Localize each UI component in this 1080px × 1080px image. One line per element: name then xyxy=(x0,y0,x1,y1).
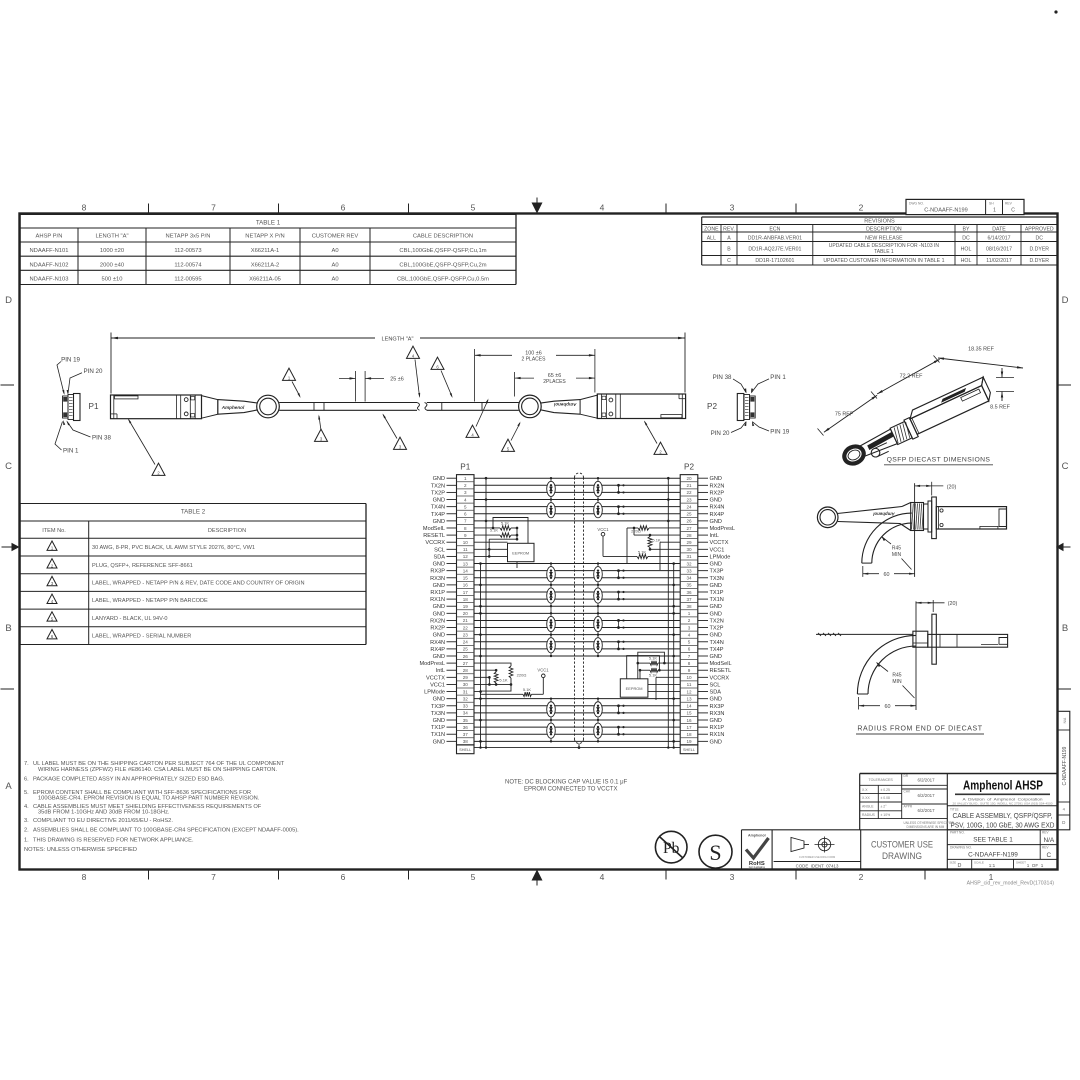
svg-text:33: 33 xyxy=(463,704,469,709)
svg-text:REVISIONS: REVISIONS xyxy=(864,219,895,225)
svg-text:RX4P: RX4P xyxy=(710,512,725,518)
svg-text:112-00595: 112-00595 xyxy=(174,276,201,282)
svg-text:TX3P: TX3P xyxy=(431,704,445,710)
svg-text:28: 28 xyxy=(463,668,469,673)
svg-text:5: 5 xyxy=(464,504,467,509)
svg-text:RX1N: RX1N xyxy=(710,732,725,738)
svg-text:PLUG, QSFP+, REFERENCE SFF-866: PLUG, QSFP+, REFERENCE SFF-8661 xyxy=(92,563,193,569)
svg-text:33: 33 xyxy=(686,568,692,573)
svg-text:27: 27 xyxy=(686,526,692,531)
svg-text:1: 1 xyxy=(993,207,996,213)
svg-text:VCC1: VCC1 xyxy=(430,682,445,688)
svg-text:1:1: 1:1 xyxy=(989,863,996,868)
svg-text:14: 14 xyxy=(463,568,469,573)
svg-text:27: 27 xyxy=(463,661,469,666)
svg-text:5.: 5. xyxy=(24,790,29,796)
svg-text:CABLE ASSEMBLY, QSFP/QSFP,: CABLE ASSEMBLY, QSFP/QSFP, xyxy=(953,811,1053,820)
svg-text:1.: 1. xyxy=(24,837,29,843)
svg-text:2PLACES: 2PLACES xyxy=(543,379,566,385)
svg-text:MIN: MIN xyxy=(892,679,902,685)
svg-text:5.1K: 5.1K xyxy=(523,687,532,692)
svg-text:RX2P: RX2P xyxy=(430,626,445,632)
svg-text:DRAWING NO.: DRAWING NO. xyxy=(950,845,972,849)
svg-text:GND: GND xyxy=(710,611,722,617)
svg-text:6/2/2017: 6/2/2017 xyxy=(917,793,935,798)
svg-text:RX3N: RX3N xyxy=(430,576,445,582)
svg-text:11/02/2017: 11/02/2017 xyxy=(986,258,1012,264)
svg-text:30: 30 xyxy=(463,682,469,687)
svg-text:COMPLIANT TO EU DIRECTIVE 2011: COMPLIANT TO EU DIRECTIVE 2011/65/EU - R… xyxy=(33,818,173,824)
svg-text:19: 19 xyxy=(686,739,692,744)
svg-text:VCC1: VCC1 xyxy=(537,668,549,673)
svg-text:12: 12 xyxy=(686,689,692,694)
svg-text:3: 3 xyxy=(730,203,735,213)
svg-text:VCC1: VCC1 xyxy=(710,547,725,553)
svg-text:18: 18 xyxy=(463,597,469,602)
svg-text:CBL,100GbE,QSFP-QSFP,Cu,0.5m: CBL,100GbE,QSFP-QSFP,Cu,0.5m xyxy=(397,276,489,282)
svg-text:GND: GND xyxy=(710,718,722,724)
svg-text:EEPROM: EEPROM xyxy=(512,551,529,556)
svg-text:13: 13 xyxy=(463,561,469,566)
svg-text:(20): (20) xyxy=(947,484,957,490)
svg-text:7: 7 xyxy=(464,519,467,524)
svg-text:VCCTX: VCCTX xyxy=(710,540,729,546)
svg-text:SHELL: SHELL xyxy=(459,748,471,752)
svg-text:CODE IDENT 07413: CODE IDENT 07413 xyxy=(796,863,839,868)
svg-text:Amphenol AHSP: Amphenol AHSP xyxy=(963,778,1043,793)
svg-text:APPR: APPR xyxy=(904,805,913,809)
svg-text:X.X: X.X xyxy=(862,788,868,792)
svg-text:Amphenol: Amphenol xyxy=(553,402,577,407)
svg-text:25 ±6: 25 ±6 xyxy=(390,377,403,383)
svg-text:ZONE: ZONE xyxy=(704,226,719,232)
svg-text:A: A xyxy=(5,781,12,792)
svg-text:7.: 7. xyxy=(24,761,29,767)
svg-text:HOL: HOL xyxy=(961,247,972,253)
svg-text:6/2/2017: 6/2/2017 xyxy=(917,778,935,783)
svg-text:20: 20 xyxy=(463,611,469,616)
svg-text:IntL: IntL xyxy=(710,533,719,539)
svg-text:12: 12 xyxy=(463,554,469,559)
svg-text:D.DYER: D.DYER xyxy=(1029,247,1049,253)
svg-text:R45: R45 xyxy=(892,673,901,679)
svg-text:X.XX: X.XX xyxy=(862,796,870,800)
svg-text:GND: GND xyxy=(433,583,445,589)
svg-text:NETAPP 3x5 P/N: NETAPP 3x5 P/N xyxy=(166,234,211,240)
svg-text:ITEM No.: ITEM No. xyxy=(42,528,66,534)
svg-text:11: 11 xyxy=(687,682,692,687)
svg-text:IntL: IntL xyxy=(436,668,445,674)
svg-text:HOL: HOL xyxy=(961,258,972,264)
svg-text:37: 37 xyxy=(463,732,469,737)
svg-text:18: 18 xyxy=(686,732,692,737)
svg-text:1000 ±20: 1000 ±20 xyxy=(100,248,124,254)
svg-text:B: B xyxy=(5,623,11,634)
svg-text:LPMode: LPMode xyxy=(424,690,445,696)
svg-text:D.DYER: D.DYER xyxy=(1029,258,1049,264)
svg-text:CHK: CHK xyxy=(904,790,912,794)
svg-text:31: 31 xyxy=(686,554,692,559)
svg-text:2011/65/EU: 2011/65/EU xyxy=(748,866,765,870)
svg-text:SH: SH xyxy=(989,201,994,205)
svg-text:LABEL, WRAPPED - SERIAL NUMBER: LABEL, WRAPPED - SERIAL NUMBER xyxy=(92,634,191,640)
svg-text:34: 34 xyxy=(463,711,469,716)
svg-text:10: 10 xyxy=(686,675,692,680)
svg-text:DESCRIPTION: DESCRIPTION xyxy=(866,226,902,232)
svg-text:DD1R-ANBFAB.VER01: DD1R-ANBFAB.VER01 xyxy=(748,235,802,241)
svg-text:3: 3 xyxy=(688,625,691,630)
svg-text:22: 22 xyxy=(686,490,692,495)
svg-text:P2: P2 xyxy=(684,463,694,472)
svg-text:A: A xyxy=(727,235,731,241)
svg-text:DR: DR xyxy=(904,774,909,778)
svg-text:AHSP_cid_rev_model_RevD(170314: AHSP_cid_rev_model_RevD(170314) xyxy=(967,881,1055,887)
svg-text:24: 24 xyxy=(686,504,692,509)
svg-text:24: 24 xyxy=(463,640,469,645)
svg-text:ALL: ALL xyxy=(707,235,716,241)
svg-text:X66211A-05: X66211A-05 xyxy=(249,276,281,282)
svg-text:B: B xyxy=(1062,623,1068,634)
svg-text:4: 4 xyxy=(600,872,605,882)
svg-text:20: 20 xyxy=(686,476,692,481)
svg-text:1: 1 xyxy=(688,611,691,616)
svg-text:16: 16 xyxy=(463,583,469,588)
svg-text:4: 4 xyxy=(600,203,605,213)
svg-text:ModPresL: ModPresL xyxy=(420,661,446,667)
svg-text:13: 13 xyxy=(686,696,692,701)
svg-text:SCL: SCL xyxy=(710,682,721,688)
svg-text:DRAWING: DRAWING xyxy=(882,851,922,862)
svg-text:30: 30 xyxy=(686,547,692,552)
svg-text:RX2P: RX2P xyxy=(710,490,725,496)
svg-text:7: 7 xyxy=(688,654,691,659)
svg-text:28: 28 xyxy=(686,533,692,538)
svg-text:DESCRIPTION: DESCRIPTION xyxy=(208,528,246,534)
svg-text:TX3N: TX3N xyxy=(710,576,724,582)
svg-text:29: 29 xyxy=(686,540,692,545)
svg-text:QSFP DIECAST DIMENSIONS: QSFP DIECAST DIMENSIONS xyxy=(887,457,991,464)
svg-text:LPMode: LPMode xyxy=(710,554,731,560)
svg-text:GND: GND xyxy=(710,562,722,568)
svg-text:4: 4 xyxy=(688,632,691,637)
svg-text:GND: GND xyxy=(433,739,445,745)
svg-text:LANYARD - BLACK, UL 94V-0: LANYARD - BLACK, UL 94V-0 xyxy=(92,616,168,622)
svg-text:SCL: SCL xyxy=(434,547,445,553)
svg-text:CUSTOMER USE DWG FORM: CUSTOMER USE DWG FORM xyxy=(799,855,835,859)
svg-text:A Division of Amphenol Cor: A Division of Amphenol Corporation xyxy=(963,796,1043,801)
svg-text:APPROVED: APPROVED xyxy=(1025,226,1054,232)
svg-text:32: 32 xyxy=(686,561,692,566)
svg-text:ASSEMBLIES SHALL BE COMPLIANT: ASSEMBLIES SHALL BE COMPLIANT TO 100GBAS… xyxy=(33,828,299,834)
svg-text:100GBASE-CR4. EPROM REVISION I: 100GBASE-CR4. EPROM REVISION IS EQUAL TO… xyxy=(38,795,260,801)
svg-text:SEE TABLE 1: SEE TABLE 1 xyxy=(973,837,1013,844)
svg-text:RX3N: RX3N xyxy=(710,711,725,717)
svg-text:± 2°: ± 2° xyxy=(881,805,888,809)
svg-text:PART NO.: PART NO. xyxy=(950,831,965,835)
svg-text:P2: P2 xyxy=(707,402,717,411)
svg-text:REV.: REV. xyxy=(723,226,735,232)
svg-text:RX1P: RX1P xyxy=(710,725,725,731)
svg-text:UNLESS OTHERWISE SPECIFIED: UNLESS OTHERWISE SPECIFIED xyxy=(904,821,955,825)
svg-text:RX4P: RX4P xyxy=(430,647,445,653)
svg-text:6.: 6. xyxy=(24,776,29,782)
svg-text:08/16/2017: 08/16/2017 xyxy=(986,247,1012,253)
svg-text:X66211A-2: X66211A-2 xyxy=(251,262,280,268)
svg-text:VCC1: VCC1 xyxy=(597,527,609,532)
svg-text:11: 11 xyxy=(463,547,468,552)
svg-text:± 0.25: ± 0.25 xyxy=(881,788,891,792)
svg-text:ModSelL: ModSelL xyxy=(710,661,732,667)
svg-text:PIN 38: PIN 38 xyxy=(713,374,732,381)
svg-text:EEPROM: EEPROM xyxy=(626,686,643,691)
svg-text:VCCRX: VCCRX xyxy=(710,675,730,681)
svg-text:PIN 1: PIN 1 xyxy=(63,447,79,454)
svg-text:5: 5 xyxy=(471,872,476,882)
svg-text:6/2/2017: 6/2/2017 xyxy=(917,808,935,813)
svg-text:36: 36 xyxy=(463,725,469,730)
svg-text:CBL,100GbE,QSFP-QSFP,Cu,1m: CBL,100GbE,QSFP-QSFP,Cu,1m xyxy=(399,248,486,254)
svg-text:17: 17 xyxy=(463,590,469,595)
svg-text:GND: GND xyxy=(433,519,445,525)
svg-text:RX1N: RX1N xyxy=(430,597,445,603)
svg-text:MIN: MIN xyxy=(892,552,902,558)
svg-text:6: 6 xyxy=(464,512,467,517)
svg-text:3: 3 xyxy=(464,490,467,495)
svg-text:DWG NO.: DWG NO. xyxy=(909,201,924,205)
svg-text:UL LABEL MUST BE ON THE SHIPPI: UL LABEL MUST BE ON THE SHIPPING CARTON … xyxy=(33,761,285,767)
svg-text:GND: GND xyxy=(433,633,445,639)
svg-text:GND: GND xyxy=(710,633,722,639)
svg-text:LABEL, WRAPPED - NETAPP P/N BA: LABEL, WRAPPED - NETAPP P/N BARCODE xyxy=(92,598,208,604)
svg-text:D: D xyxy=(958,863,962,869)
svg-text:35dB FROM 1-10GHz AND 30dB FRO: 35dB FROM 1-10GHz AND 30dB FROM 10-18GHz… xyxy=(38,810,170,816)
svg-text:± 0.08: ± 0.08 xyxy=(881,796,891,800)
svg-text:RX3P: RX3P xyxy=(710,704,725,710)
svg-text:5.1K: 5.1K xyxy=(638,550,647,555)
svg-text:36: 36 xyxy=(686,590,692,595)
svg-text:REV: REV xyxy=(1005,201,1013,205)
svg-text:500 ±10: 500 ±10 xyxy=(102,276,123,282)
svg-text:29: 29 xyxy=(463,675,469,680)
svg-text:34: 34 xyxy=(686,576,692,581)
svg-text:D: D xyxy=(1062,295,1069,306)
svg-text:C-NDAAFF-N199: C-NDAAFF-N199 xyxy=(968,851,1018,858)
svg-text:4.: 4. xyxy=(24,804,29,810)
svg-text:PIN 20: PIN 20 xyxy=(711,430,730,437)
svg-text:LABEL, WRAPPED - NETAPP P/N &: LABEL, WRAPPED - NETAPP P/N & REV, DATE … xyxy=(92,581,305,587)
svg-text:6: 6 xyxy=(341,203,346,213)
svg-text:DIMENSIONS ARE IN MM: DIMENSIONS ARE IN MM xyxy=(907,825,945,829)
svg-text:5.1K: 5.1K xyxy=(649,656,658,661)
svg-text:A0: A0 xyxy=(331,248,338,254)
svg-text:PACKAGE COMPLETED ASSY IN AN A: PACKAGE COMPLETED ASSY IN AN APPROPRIATE… xyxy=(33,776,225,782)
svg-text:TOLERANCES: TOLERANCES xyxy=(869,778,894,782)
svg-text:N/A: N/A xyxy=(1063,717,1067,723)
svg-text:REV: REV xyxy=(1042,831,1049,835)
svg-text:PIN 20: PIN 20 xyxy=(84,368,103,375)
svg-text:EPROM CONNECTED TO VCCTX: EPROM CONNECTED TO VCCTX xyxy=(524,787,617,793)
svg-text:6: 6 xyxy=(341,872,346,882)
svg-text:DATE: DATE xyxy=(992,226,1006,232)
svg-text:GND: GND xyxy=(433,697,445,703)
svg-text:GND: GND xyxy=(433,498,445,504)
svg-text:112-00573: 112-00573 xyxy=(174,248,201,254)
svg-text:60: 60 xyxy=(884,572,890,578)
svg-text:GND: GND xyxy=(710,654,722,660)
svg-text:TX4P: TX4P xyxy=(710,647,724,653)
svg-text:NOTE: DC BLOCKING CAP VALUE IS: NOTE: DC BLOCKING CAP VALUE IS 0.1 μF xyxy=(505,780,628,786)
svg-text:4: 4 xyxy=(464,497,467,502)
svg-text:8: 8 xyxy=(688,661,691,666)
svg-text:CABLE DESCRIPTION: CABLE DESCRIPTION xyxy=(413,234,473,240)
svg-text:P1: P1 xyxy=(88,402,98,411)
svg-text:UPDATED CUSTOMER INFORMATION I: UPDATED CUSTOMER INFORMATION IN TABLE 1 xyxy=(823,258,944,264)
svg-text:P1: P1 xyxy=(460,463,470,472)
svg-text:TX1N: TX1N xyxy=(431,732,445,738)
svg-text:D: D xyxy=(5,295,12,306)
svg-text:AHSP P/N: AHSP P/N xyxy=(36,234,63,240)
svg-text:A0: A0 xyxy=(331,276,338,282)
svg-text:SHELL: SHELL xyxy=(683,748,695,752)
svg-text:22: 22 xyxy=(463,625,469,630)
svg-text:TX2N: TX2N xyxy=(710,618,724,624)
svg-text:LENGTH "A": LENGTH "A" xyxy=(382,336,414,342)
svg-text:35: 35 xyxy=(463,718,469,723)
svg-text:23: 23 xyxy=(686,497,692,502)
svg-text:6: 6 xyxy=(688,647,691,652)
svg-text:GND: GND xyxy=(710,519,722,525)
svg-text:17: 17 xyxy=(686,725,692,730)
svg-text:NDAAFF-N101: NDAAFF-N101 xyxy=(30,248,69,254)
svg-text:CBL,100GbE,QSFP-QSFP,Cu,2m: CBL,100GbE,QSFP-QSFP,Cu,2m xyxy=(399,262,486,268)
svg-text:C: C xyxy=(1062,461,1069,472)
svg-text:2: 2 xyxy=(464,483,467,488)
svg-text:5.1K: 5.1K xyxy=(501,521,510,526)
svg-text:CUSTOMER USE: CUSTOMER USE xyxy=(871,839,933,850)
svg-text:TABLE 1: TABLE 1 xyxy=(874,249,894,255)
svg-text:TX1P: TX1P xyxy=(431,725,445,731)
svg-text:38: 38 xyxy=(686,604,692,609)
svg-text:RX4N: RX4N xyxy=(430,640,445,646)
svg-text:8: 8 xyxy=(82,203,87,213)
svg-text:21: 21 xyxy=(463,618,469,623)
svg-text:26: 26 xyxy=(686,519,692,524)
svg-text:SHEET: SHEET xyxy=(1016,860,1026,864)
svg-text:TX3P: TX3P xyxy=(710,569,724,575)
svg-text:5.1K: 5.1K xyxy=(490,528,499,533)
svg-text:6/14/2017: 6/14/2017 xyxy=(987,235,1010,241)
svg-text:TX1P: TX1P xyxy=(710,590,724,596)
svg-text:DC: DC xyxy=(1036,235,1044,241)
svg-text:60: 60 xyxy=(885,704,891,710)
svg-text:NOTES: UNLESS OTHERWISE SPECIF: NOTES: UNLESS OTHERWISE SPECIFIED xyxy=(24,847,137,853)
svg-text:GND: GND xyxy=(433,654,445,660)
svg-text:2: 2 xyxy=(859,872,864,882)
svg-text:1: 1 xyxy=(464,476,467,481)
svg-text:37: 37 xyxy=(686,597,692,602)
svg-text:3: 3 xyxy=(730,872,735,882)
svg-text:RESETL: RESETL xyxy=(710,668,732,674)
svg-text:5.1K: 5.1K xyxy=(649,673,658,678)
svg-text:9: 9 xyxy=(688,668,691,673)
svg-text:VCCTX: VCCTX xyxy=(426,675,445,681)
svg-text:RX1P: RX1P xyxy=(430,590,445,596)
svg-text:2: 2 xyxy=(688,618,691,623)
svg-text:Amphenol: Amphenol xyxy=(748,833,766,837)
svg-text:8: 8 xyxy=(464,526,467,531)
svg-text:WIRING HARNESS (ZPFW2) FILE #E: WIRING HARNESS (ZPFW2) FILE #E86140. CSA… xyxy=(38,767,277,773)
svg-text:21: 21 xyxy=(686,483,692,488)
svg-text:TX2P: TX2P xyxy=(431,490,445,496)
svg-text:20 VALLEY BLVD., SUITE 150, WD: 20 VALLEY BLVD., SUITE 150, WDELL NC 275… xyxy=(953,802,1054,806)
svg-text:PIN 1: PIN 1 xyxy=(770,374,786,381)
svg-text:NDAAFF-N102: NDAAFF-N102 xyxy=(30,262,69,268)
svg-text:C: C xyxy=(1011,207,1015,213)
svg-text:5.1K: 5.1K xyxy=(652,538,661,543)
svg-text:CUSTOMER REV: CUSTOMER REV xyxy=(312,234,359,240)
svg-text:RESETL: RESETL xyxy=(423,533,445,539)
svg-text:38: 38 xyxy=(463,739,469,744)
svg-text:GND: GND xyxy=(710,604,722,610)
svg-text:RX3P: RX3P xyxy=(430,569,445,575)
svg-text:N/A: N/A xyxy=(1043,837,1054,844)
svg-text:S: S xyxy=(709,840,721,865)
svg-text:GND: GND xyxy=(433,718,445,724)
svg-text:5: 5 xyxy=(688,640,691,645)
svg-text:3.: 3. xyxy=(24,818,29,824)
svg-text:19: 19 xyxy=(463,604,469,609)
svg-text:75 REF: 75 REF xyxy=(835,412,854,418)
svg-text:TABLE 2: TABLE 2 xyxy=(181,509,206,516)
svg-text:B: B xyxy=(727,247,731,253)
svg-text:ECN: ECN xyxy=(769,226,780,232)
svg-text:35: 35 xyxy=(686,583,692,588)
svg-text:30 AWG, 8-PR, PVC BLACK, UL AW: 30 AWG, 8-PR, PVC BLACK, UL AWM STYLE 20… xyxy=(92,545,255,551)
svg-text:32: 32 xyxy=(463,696,469,701)
svg-text:NEW RELEASE: NEW RELEASE xyxy=(865,235,903,241)
svg-text:DD1R-17102601: DD1R-17102601 xyxy=(755,258,794,264)
svg-text:RADIUS FROM END OF DIECAST: RADIUS FROM END OF DIECAST xyxy=(857,726,982,733)
svg-text:NDAAFF-N103: NDAAFF-N103 xyxy=(30,276,69,282)
svg-text:8: 8 xyxy=(82,872,87,882)
svg-text:7: 7 xyxy=(211,203,216,213)
svg-text:2.: 2. xyxy=(24,828,29,834)
svg-text:Amphenol: Amphenol xyxy=(221,405,245,410)
svg-text:25: 25 xyxy=(686,512,692,517)
svg-text:NETAPP X P/N: NETAPP X P/N xyxy=(245,234,284,240)
svg-text:C: C xyxy=(1046,852,1051,859)
svg-text:5.1K: 5.1K xyxy=(499,678,508,683)
svg-text:14: 14 xyxy=(686,704,692,709)
svg-text:SCALE: SCALE xyxy=(974,860,984,864)
svg-text:10: 10 xyxy=(463,540,469,545)
svg-text:GND: GND xyxy=(433,604,445,610)
svg-text:TABLE 1: TABLE 1 xyxy=(256,219,281,226)
svg-text:RX2N: RX2N xyxy=(710,483,725,489)
svg-text:TX4N: TX4N xyxy=(710,640,724,646)
svg-text:TX2N: TX2N xyxy=(431,483,445,489)
svg-text:TX3N: TX3N xyxy=(431,711,445,717)
svg-text:(20): (20) xyxy=(948,601,958,607)
svg-text:TX4P: TX4P xyxy=(431,512,445,518)
svg-text:A0: A0 xyxy=(331,262,338,268)
svg-text:DC: DC xyxy=(962,235,970,241)
svg-text:THIS DRAWING IS RESERVED FOR N: THIS DRAWING IS RESERVED FOR NETWORK APP… xyxy=(33,837,194,843)
svg-text:SDA: SDA xyxy=(433,554,445,560)
svg-text:Amphenol: Amphenol xyxy=(872,511,895,516)
svg-text:9: 9 xyxy=(464,533,467,538)
svg-text:GND: GND xyxy=(433,562,445,568)
